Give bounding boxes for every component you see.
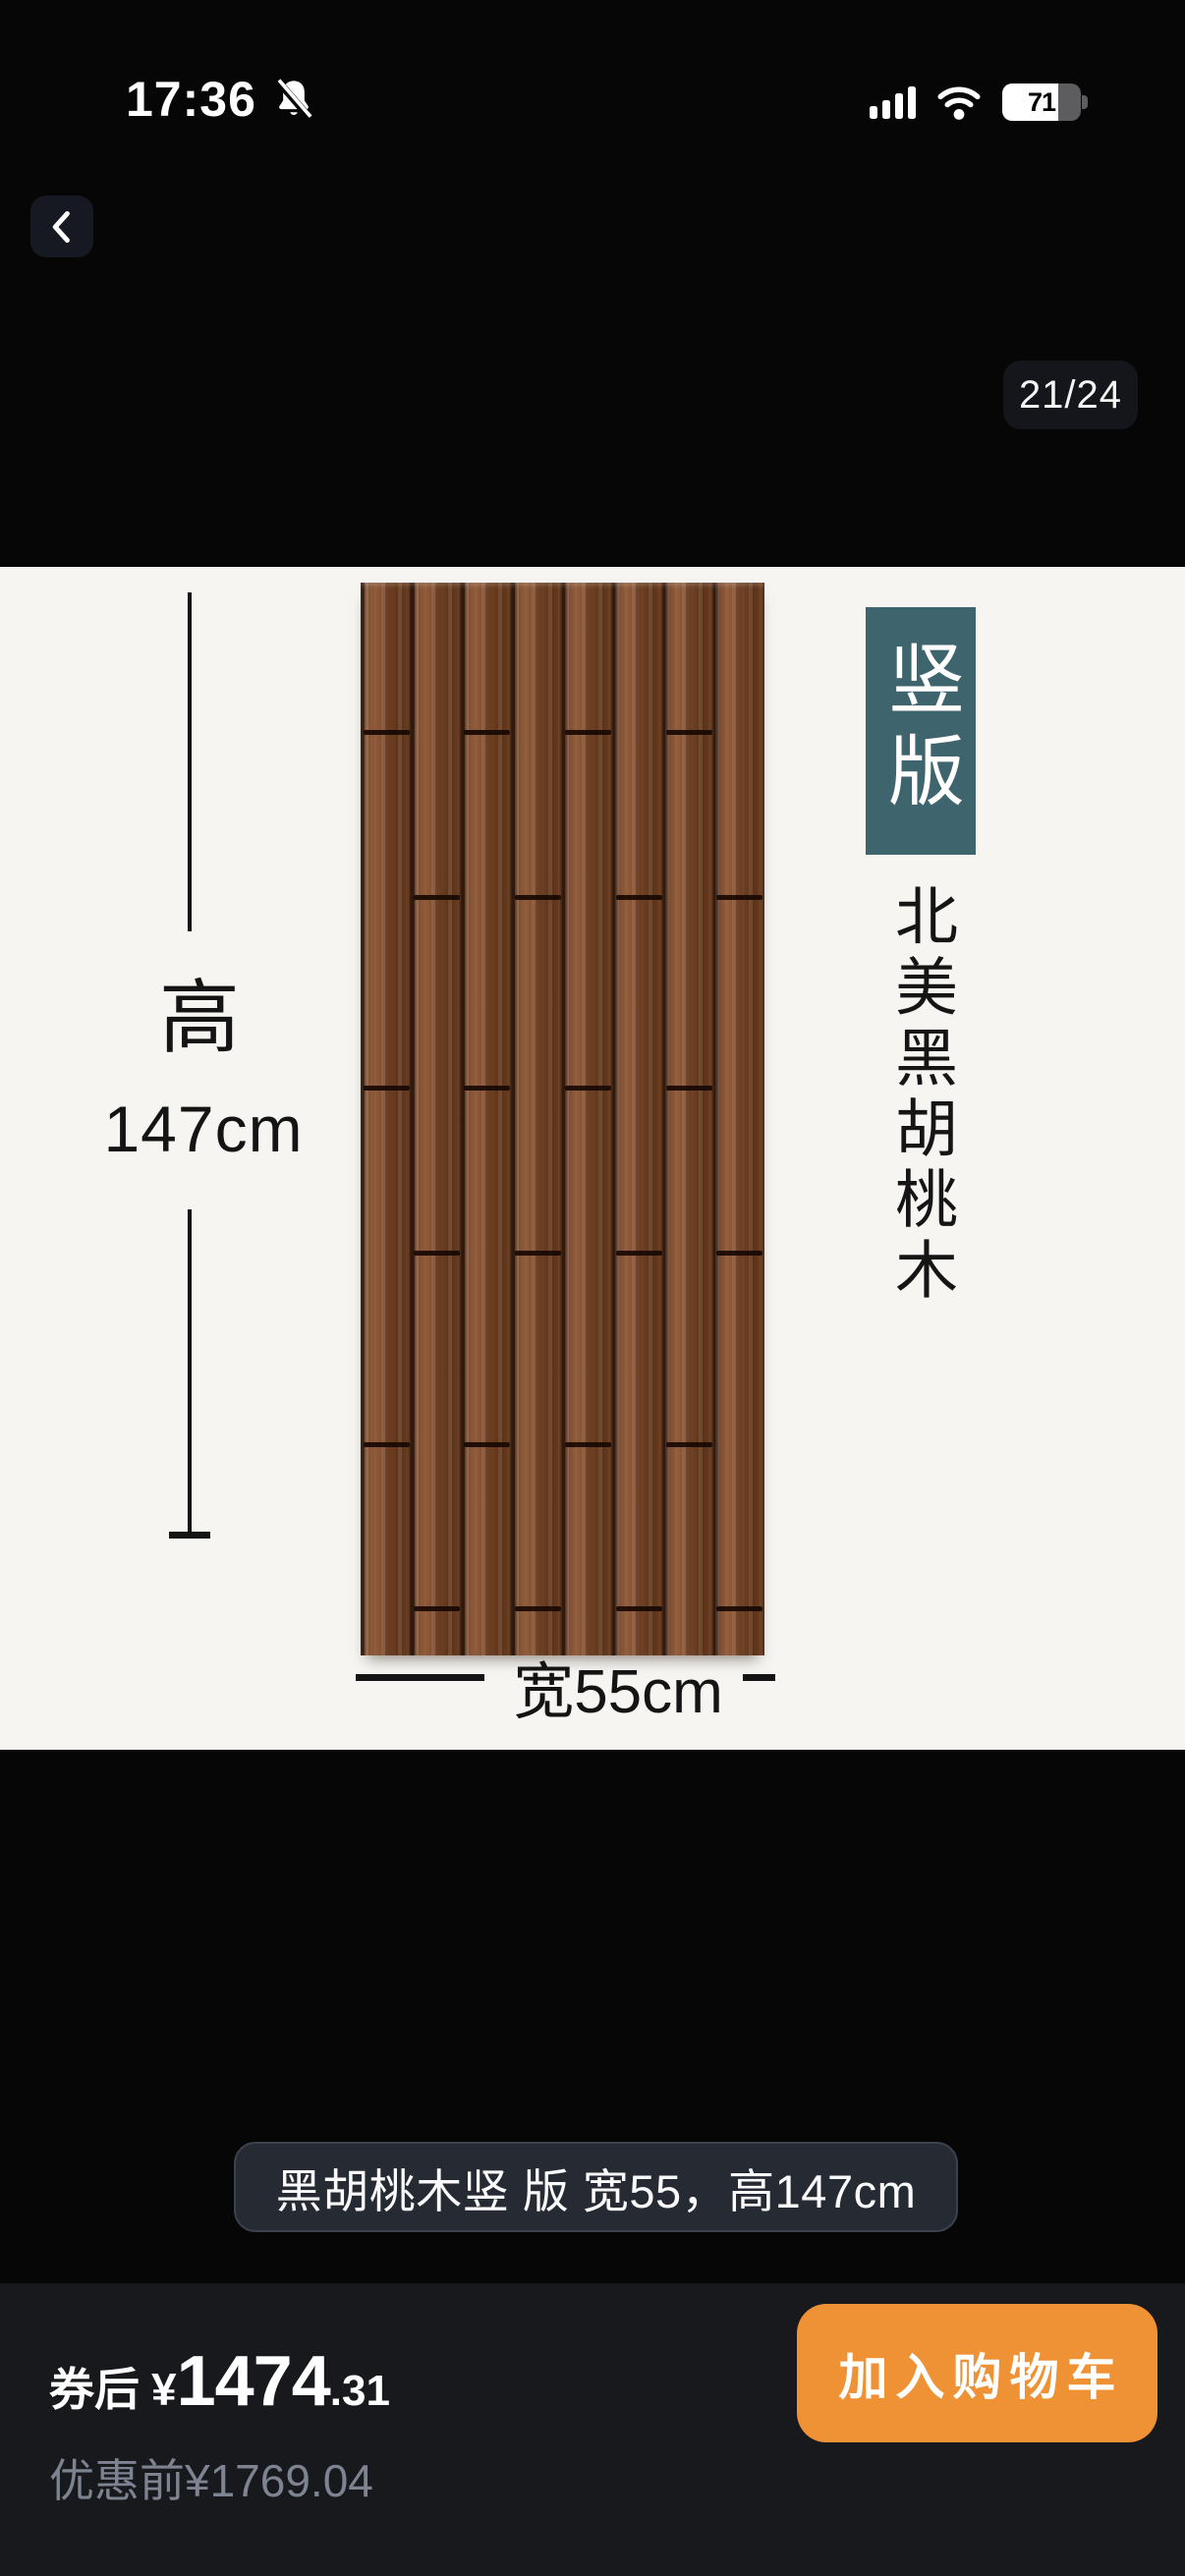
back-button[interactable] [30,196,93,257]
plank-joint [716,1606,762,1611]
plank-joint [616,1606,662,1611]
plank-joint [364,1442,410,1447]
currency-symbol: ¥ [151,2367,177,2412]
plank-joint [364,1086,410,1091]
price-decimal: .31 [330,2370,390,2413]
add-to-cart-label: 加入购物车 [831,2338,1124,2409]
price-integer: 1474 [177,2346,330,2417]
height-value: 147cm [103,1092,303,1166]
plank-joint [565,730,611,735]
plank-joint [515,1251,561,1256]
chevron-left-icon [45,208,79,246]
height-dimension-line-top [188,592,192,931]
plank-joint [464,1086,510,1091]
page-indicator: 21/24 [1003,361,1138,429]
original-price-prefix: 优惠前 [49,2455,185,2506]
height-dimension-cap [169,1532,210,1539]
battery-nub [1082,95,1088,109]
plank-joint [716,895,762,900]
cellular-signal-icon [870,85,916,119]
plank-joint [716,1251,762,1256]
plank-joint [565,1086,611,1091]
status-right-cluster: 71 [870,83,1081,122]
plank-joint [565,1442,611,1447]
plank-joint [414,1251,460,1256]
battery-percent: 71 [1028,87,1055,118]
plank-joint [616,1251,662,1256]
notifications-muted-icon [269,75,318,126]
plank-joint [364,730,410,735]
height-dimension-line-bottom [188,1209,192,1534]
plank-joint [666,1442,712,1447]
original-price-value: ¥1769.04 [185,2455,373,2506]
plank-joint [666,1086,712,1091]
coupon-price: 券后 ¥ 1474 .31 [49,2346,390,2417]
page-indicator-text: 21/24 [1019,373,1122,418]
width-dimension-line-right [743,1674,775,1681]
battery-icon: 71 [1002,84,1081,121]
sku-caption-pill: 黑胡桃木竖 版 宽55，高147cm [234,2142,958,2232]
plank-joint [515,895,561,900]
original-price: 优惠前¥1769.04 [49,2454,373,2508]
plank-joint [464,1442,510,1447]
product-image-slide[interactable]: 高 147cm 竖版 北美黑胡桃木 宽55cm [0,567,1185,1750]
app-screen: 17:36 71 21/24 高 147cm [0,0,1185,2576]
plank-joint [414,1606,460,1611]
plank-joint [515,1606,561,1611]
coupon-prefix-label: 券后 [49,2367,140,2412]
plank-joint [414,895,460,900]
width-dimension-line-left [356,1674,484,1681]
width-value: 宽55cm [513,1642,723,1730]
material-vertical-label: 北美黑胡桃木 [876,883,967,1308]
add-to-cart-button[interactable]: 加入购物车 [797,2304,1157,2442]
walnut-panel-image [361,583,764,1655]
status-time: 17:36 [126,71,256,128]
sku-caption-text: 黑胡桃木竖 版 宽55，高147cm [276,2154,916,2221]
plank-joint [666,730,712,735]
wifi-icon [933,83,985,122]
orientation-badge: 竖版 [866,607,976,855]
height-label: 高 [159,952,240,1069]
purchase-bar: 券后 ¥ 1474 .31 优惠前¥1769.04 加入购物车 [0,2283,1185,2576]
plank-joint [616,895,662,900]
plank-joint [464,730,510,735]
